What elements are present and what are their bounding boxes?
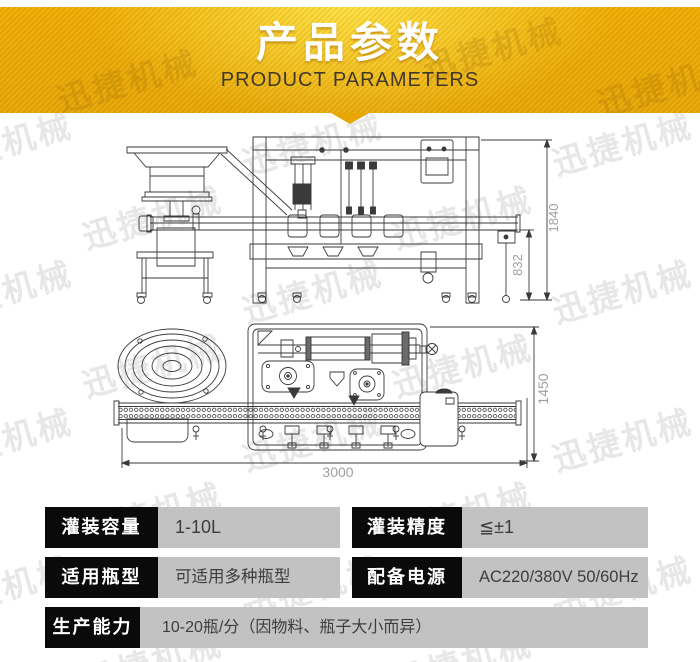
spec-value-cell: ≦±1 xyxy=(462,507,648,548)
dim-label-total-height: 1840 xyxy=(546,204,561,233)
dim-label-total-length: 3000 xyxy=(322,464,353,480)
spec-label-cell: 适用瓶型 xyxy=(45,557,158,598)
spec-value-cell: 1-10L xyxy=(158,507,340,548)
plan-view-drawing: 3000 1450 xyxy=(114,324,551,480)
spec-value-cell: AC220/380V 50/60Hz xyxy=(462,557,648,598)
control-panel xyxy=(421,140,453,183)
product-parameters-page: 迅捷机械迅捷机械迅捷机械迅捷机械迅捷机械迅捷机械迅捷机械迅捷机械迅捷机械迅捷机械… xyxy=(0,0,700,662)
spec-label-cell: 灌装精度 xyxy=(352,507,462,548)
dim-label-conveyor-height: 832 xyxy=(510,254,525,276)
banner: 迅捷机械 迅捷机械 迅捷机械 产品参数 PRODUCT PARAMETERS xyxy=(0,7,700,113)
page-title: 产品参数 xyxy=(0,7,700,67)
spec-value-cell: 10-20瓶/分（因物料、瓶子大小而异） xyxy=(140,607,648,648)
spec-label-cell: 配备电源 xyxy=(352,557,462,598)
spec-label-cell: 生产能力 xyxy=(45,607,140,648)
technical-drawings: 1840 832 xyxy=(0,115,700,490)
page-subtitle: PRODUCT PARAMETERS xyxy=(0,69,700,91)
banner-notch-icon xyxy=(331,113,369,124)
watermark-text: 迅捷机械 xyxy=(696,617,700,662)
spec-value-cell: 可适用多种瓶型 xyxy=(158,557,340,598)
front-view-drawing: 1840 832 xyxy=(127,137,561,304)
dimension-832: 832 xyxy=(510,230,534,300)
spec-label-cell: 灌装容量 xyxy=(45,507,158,548)
dim-label-total-depth: 1450 xyxy=(535,373,551,404)
